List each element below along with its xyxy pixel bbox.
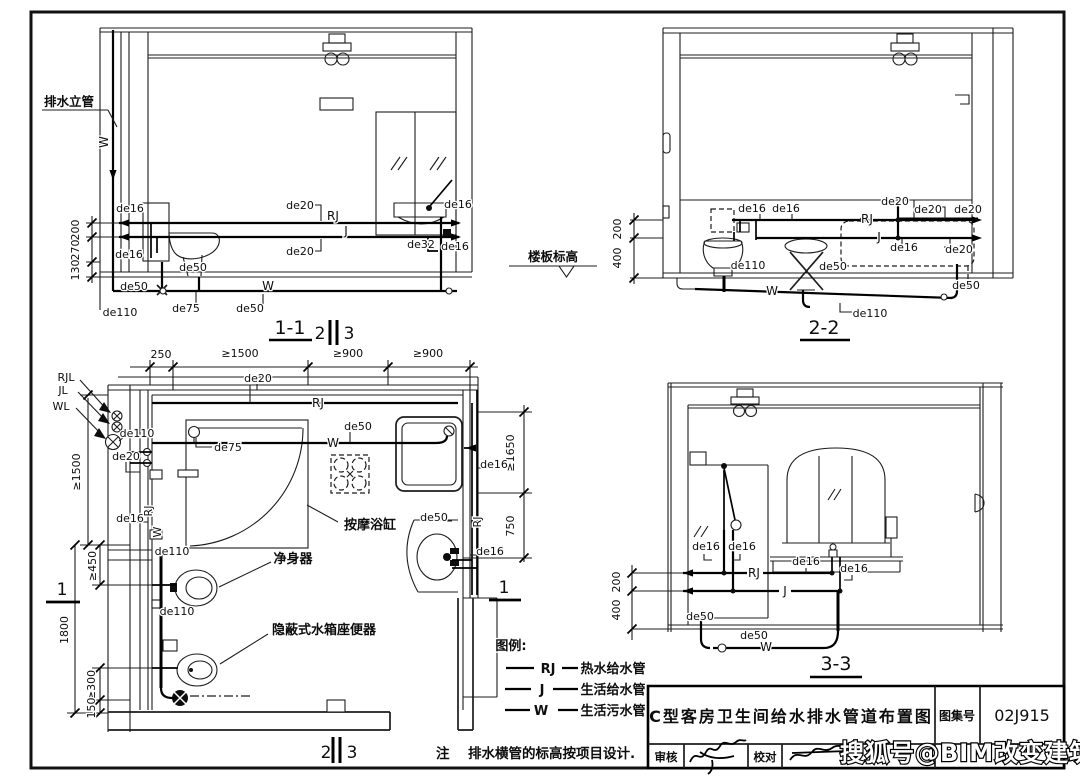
dim-130: 130 xyxy=(69,260,82,281)
dim-400: 400 xyxy=(610,600,623,621)
pipe-size-label: de110 xyxy=(160,605,195,618)
legend-code: RJ xyxy=(541,662,556,677)
massage-bathtub xyxy=(186,420,308,548)
riser-label: JL xyxy=(57,384,68,397)
proof-label: 校对 xyxy=(754,750,777,764)
dim-ge900: ≥900 xyxy=(333,347,363,360)
exhaust-fan-icon xyxy=(731,389,759,417)
pipe-size-label: de110 xyxy=(853,307,888,320)
dim-200: 200 xyxy=(611,219,624,240)
cut-mark-1: 1 xyxy=(57,580,68,600)
section-2-2: 200 400 楼板标高 de16 de16 de20 de20 de20 RJ… xyxy=(509,28,1013,340)
elevation-mark-icon xyxy=(559,266,574,277)
pipe-size-label: de20 xyxy=(286,245,314,258)
concealed-cistern xyxy=(143,203,169,261)
review-label: 审核 xyxy=(655,750,678,764)
shower-stall xyxy=(690,452,768,618)
pipe-size-label: de50 xyxy=(952,279,980,292)
pipe-size-label: de50 xyxy=(120,280,148,293)
dim-150: 150 xyxy=(85,698,98,719)
legend-code: J xyxy=(539,683,545,698)
pipe-size-label: de16 xyxy=(115,248,143,261)
pipe-line-label: W xyxy=(151,526,164,537)
pipe-size-label: de16 xyxy=(692,540,720,553)
pipe-line-label: RJ xyxy=(748,566,760,580)
dim-400: 400 xyxy=(611,248,624,269)
cut-mark-1: 1 xyxy=(499,578,510,598)
pipe-size-label: de50 xyxy=(686,610,714,623)
drain-riser-callout: 排水立管 xyxy=(44,94,94,109)
pipe-size-label: de50 xyxy=(819,260,847,273)
dim-ge900: ≥900 xyxy=(413,347,443,360)
legend-code: W xyxy=(534,704,548,719)
pipe-size-label: de16 xyxy=(441,240,469,253)
bidet-callout: 净身器 xyxy=(273,551,313,567)
shower-tray xyxy=(396,417,462,491)
view-title-1-1: 1-1 xyxy=(274,317,305,339)
pipe-size-label: de50 xyxy=(179,261,207,274)
legend-title: 图例: xyxy=(495,638,526,654)
pipe-size-label: de20 xyxy=(954,203,982,216)
pipe-line-label: W xyxy=(327,436,339,450)
pipe-line-label: W xyxy=(262,279,274,293)
drawing-title: C型客房卫生间给水排水管道布置图 xyxy=(649,707,933,726)
cut-mark-2: 2 xyxy=(321,743,332,763)
cut-mark-3: 3 xyxy=(344,324,355,344)
pipe-size-label: de32 xyxy=(407,238,435,251)
dim-ge300: ≥300 xyxy=(85,670,98,700)
dim-270: 270 xyxy=(69,240,82,261)
pipe-size-label: de16 xyxy=(116,202,144,215)
pipe-size-label: de16 xyxy=(738,202,766,215)
tub-spout-icon xyxy=(178,470,198,477)
dim-1800: 1800 xyxy=(58,616,71,644)
pipe-size-label: de16 xyxy=(772,202,800,215)
riser-label: RJL xyxy=(57,371,75,384)
mirror-arch xyxy=(782,448,890,543)
pipe-size-label: de75 xyxy=(172,302,200,315)
pipe-line-label: W xyxy=(760,640,772,654)
wall-vent-icon xyxy=(320,98,353,110)
pipe-size-label: de16 xyxy=(116,512,144,525)
plan-view: 250 ≥1500 ≥900 ≥900 ≥1500 ≥450 1800 ≥300… xyxy=(46,347,532,763)
dim-ge1500: ≥1500 xyxy=(221,347,258,360)
atlas-number-label: 图集号 xyxy=(939,708,975,723)
watermark-text: 搜狐号@BIM改变建筑 xyxy=(840,739,1080,767)
pipe-size-label: de16 xyxy=(476,545,504,558)
pipe-line-label: RJ xyxy=(312,396,324,410)
pipe-size-label: de20 xyxy=(244,372,272,385)
exhaust-fan-icon xyxy=(891,34,919,65)
floor-drain-icon xyxy=(189,427,200,438)
dim-750: 750 xyxy=(504,516,517,537)
dim-ge1500: ≥1500 xyxy=(70,453,83,490)
concealed-toilet-callout: 隐蔽式水箱座便器 xyxy=(272,622,377,638)
note-prefix: 注 xyxy=(436,745,450,762)
legend-label: 生活污水管 xyxy=(580,703,645,719)
vanity-counter xyxy=(770,517,903,572)
exhaust-fan-icon xyxy=(323,34,351,65)
view-title-3-3: 3-3 xyxy=(820,653,851,675)
pipe-line-label: W xyxy=(766,284,778,298)
drawing-sheet: 200 270 130 de16 de20 RJ J de20 de16 de5… xyxy=(0,0,1080,780)
pipe-line-label: J xyxy=(782,584,787,598)
cut-mark-3: 3 xyxy=(347,743,358,763)
pipe-line-label: J xyxy=(343,224,348,238)
pipe-size-label: de20 xyxy=(881,195,909,208)
drawing-note: 注 排水横管的标高按项目设计. xyxy=(436,745,635,762)
door-handle-icon xyxy=(663,133,670,153)
pipe-size-label: de50 xyxy=(236,302,264,315)
riser-w-label: W xyxy=(97,136,111,148)
pipe-size-label: de20 xyxy=(286,199,314,212)
dim-200: 200 xyxy=(610,572,623,593)
pipe-size-label: de16 xyxy=(480,458,508,471)
pipe-size-label: de16 xyxy=(728,540,756,553)
dim-ge450: ≥450 xyxy=(86,551,99,581)
pipe-size-label: de20 xyxy=(914,203,942,216)
pipe-size-label: de16 xyxy=(840,562,868,575)
pipe-size-label: de16 xyxy=(792,555,820,568)
dim-250: 250 xyxy=(151,348,172,361)
air-jet-unit-icon xyxy=(331,455,369,493)
pipe-line-label: J xyxy=(876,230,881,244)
section-3-3: 200 400 de16 de16 RJ J de16 de16 de50 de… xyxy=(610,383,1003,677)
cut-mark-2: 2 xyxy=(315,324,326,344)
pipe-size-label: de50 xyxy=(344,420,372,433)
washbasin-plan xyxy=(407,520,459,592)
pipe-size-label: de50 xyxy=(420,511,448,524)
dim-200: 200 xyxy=(69,220,82,241)
note-text: 排水横管的标高按项目设计. xyxy=(468,745,635,762)
pipe-size-label: de110 xyxy=(120,427,155,440)
pipe-size-label: de20 xyxy=(945,243,973,256)
pipe-line-label: RJ xyxy=(861,212,873,226)
floor-level-callout: 楼板标高 xyxy=(528,249,578,264)
view-title-2-2: 2-2 xyxy=(808,317,839,339)
drawing-canvas: 200 270 130 de16 de20 RJ J de20 de16 de5… xyxy=(0,0,1080,780)
pipe-size-label: de20 xyxy=(112,450,140,463)
pipe-size-label: de110 xyxy=(103,306,138,319)
atlas-number: 02J915 xyxy=(994,706,1050,725)
legend-label: 热水给水管 xyxy=(580,661,645,677)
pipe-size-label: de75 xyxy=(214,441,242,454)
riser-label: WL xyxy=(52,400,70,413)
legend-label: 生活给水管 xyxy=(580,682,645,698)
pipe-size-label: de110 xyxy=(731,259,766,272)
massage-tub-callout: 按摩浴缸 xyxy=(344,517,396,533)
pipe-line-label: RJ xyxy=(471,517,484,528)
pipe-size-label: de16 xyxy=(890,241,918,254)
towel-hook-icon xyxy=(955,95,969,104)
pipe-line-label: RJ xyxy=(142,506,155,517)
legend: 图例: RJ 热水给水管 J 生活给水管 W 生活污水管 xyxy=(495,638,645,719)
pipe-line-label: RJ xyxy=(327,209,339,223)
pipe-size-label: de110 xyxy=(155,545,190,558)
pipe-size-label: de16 xyxy=(444,198,472,211)
